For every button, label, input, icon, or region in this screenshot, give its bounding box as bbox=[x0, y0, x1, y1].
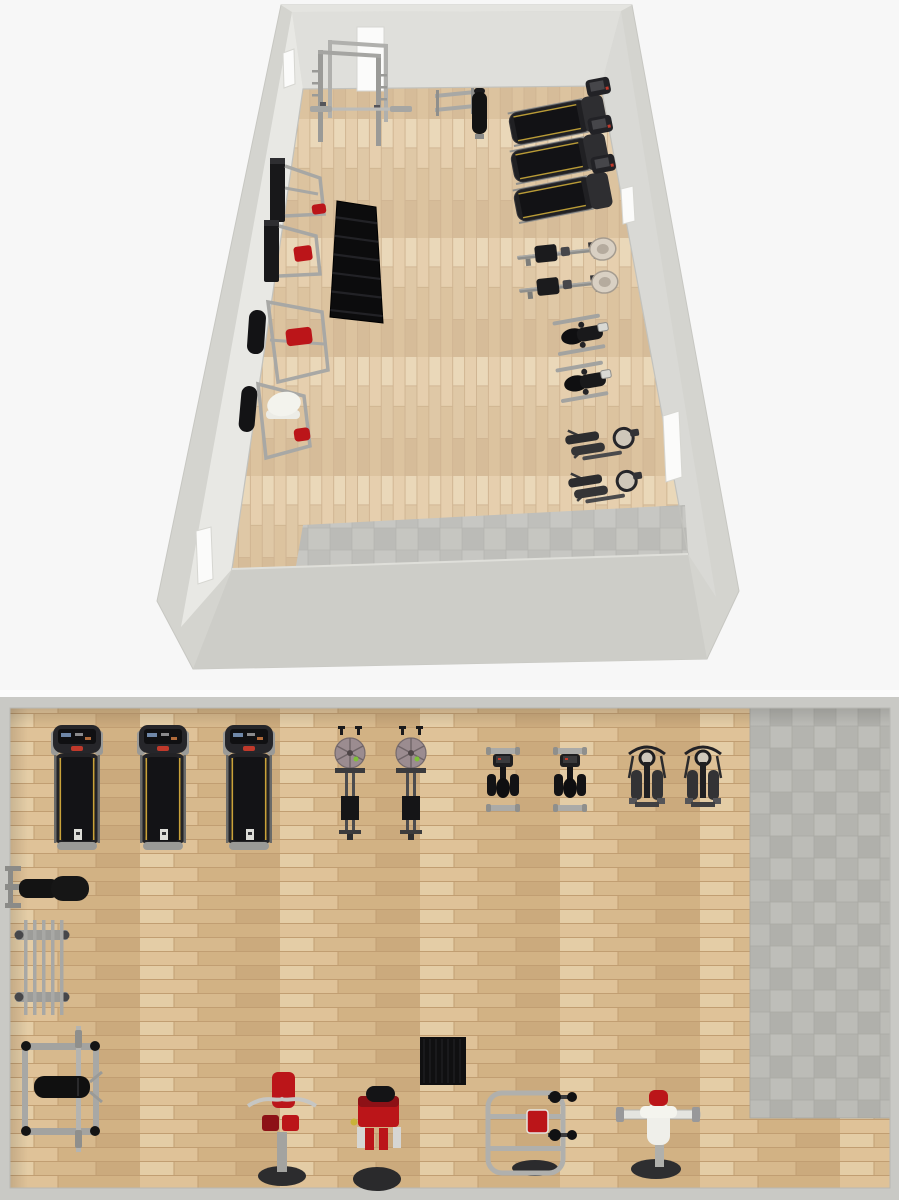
grip-weight bbox=[549, 1129, 561, 1141]
rail-knob bbox=[15, 993, 24, 1002]
foot-pedal bbox=[652, 770, 663, 800]
stop-button bbox=[71, 746, 83, 751]
stabilizer-cap bbox=[515, 804, 520, 812]
stored-barbell bbox=[51, 920, 55, 1015]
foot-pedal bbox=[687, 770, 698, 800]
pedal bbox=[510, 774, 519, 796]
bike-console bbox=[597, 322, 608, 332]
bike-console bbox=[600, 369, 611, 379]
front-stabilizer bbox=[486, 748, 520, 754]
frame-knob bbox=[21, 1126, 31, 1136]
rower-leg bbox=[527, 292, 533, 299]
screen-readout bbox=[75, 733, 83, 736]
rear-cap bbox=[347, 834, 353, 840]
rear-cap bbox=[57, 842, 97, 850]
bench-pad bbox=[34, 1076, 90, 1098]
weight-stack bbox=[270, 158, 285, 222]
rear-stabilizer bbox=[553, 805, 587, 811]
bench-pad bbox=[472, 92, 487, 134]
barbell-sleeve bbox=[390, 106, 412, 112]
elliptical-console bbox=[629, 429, 639, 437]
leg-pad bbox=[379, 1128, 388, 1150]
weight-stack bbox=[264, 220, 279, 282]
plan-top-gap bbox=[0, 690, 899, 697]
belt-stripe bbox=[179, 758, 181, 840]
rear-stabilizer bbox=[486, 805, 520, 811]
side-rail bbox=[98, 755, 101, 843]
front-stabilizer bbox=[553, 748, 587, 754]
belt-label-mark bbox=[76, 832, 80, 835]
monitor-dot bbox=[354, 757, 359, 762]
stabilizer-cap bbox=[553, 804, 558, 812]
screen-readout bbox=[161, 733, 169, 736]
stack-cap bbox=[264, 220, 279, 226]
adjust-handle bbox=[351, 1119, 358, 1126]
barbell-sleeve bbox=[75, 1030, 82, 1048]
column bbox=[655, 1142, 664, 1167]
belt-stripe bbox=[146, 758, 148, 840]
press-black-pad bbox=[246, 309, 266, 354]
rower-box bbox=[536, 277, 560, 296]
stabilizer-cap bbox=[582, 747, 587, 755]
red-seat bbox=[293, 245, 313, 262]
side-rail bbox=[226, 755, 229, 843]
right-door bbox=[663, 411, 682, 482]
stop-button bbox=[607, 124, 611, 128]
gym-2d-floor-plan bbox=[0, 690, 899, 1200]
rear-cap bbox=[408, 834, 414, 840]
side-rail bbox=[140, 755, 143, 843]
bench-foot bbox=[5, 903, 21, 908]
arm-grip bbox=[692, 1107, 700, 1122]
stop-button bbox=[243, 746, 255, 751]
bench-seat-pad bbox=[51, 876, 89, 901]
side-rail bbox=[270, 755, 273, 843]
frame-knob bbox=[90, 1041, 100, 1051]
belt-stripe bbox=[60, 758, 62, 840]
rear-cap bbox=[229, 842, 269, 850]
screen-dot bbox=[565, 758, 568, 760]
rail-knob bbox=[15, 931, 24, 940]
barbell-sleeve bbox=[75, 1130, 82, 1148]
stored-barbell bbox=[42, 920, 46, 1015]
front-wall-face bbox=[193, 554, 707, 669]
rack-peg bbox=[312, 70, 319, 73]
base-plate bbox=[353, 1167, 401, 1191]
screen-readout bbox=[171, 737, 177, 740]
stop-button bbox=[157, 746, 169, 751]
stored-barbell bbox=[60, 920, 64, 1015]
rubber-mat bbox=[420, 1037, 466, 1085]
arm-pad bbox=[262, 1115, 279, 1131]
barbell-sleeve bbox=[310, 106, 332, 112]
stored-barbell bbox=[24, 920, 28, 1015]
floor-shadow-top bbox=[10, 708, 890, 726]
side-rail bbox=[184, 755, 187, 843]
holder-post bbox=[436, 90, 439, 116]
handle-stem bbox=[401, 726, 404, 735]
rear-stabilizer bbox=[635, 802, 659, 807]
stack-cap bbox=[270, 158, 285, 164]
top-cushion bbox=[366, 1086, 395, 1102]
screen-readout bbox=[257, 737, 263, 740]
rear-cap bbox=[143, 842, 183, 850]
pedal bbox=[554, 774, 563, 796]
treadmill-belt bbox=[59, 757, 95, 841]
rack-peg bbox=[380, 98, 387, 101]
arm-grip bbox=[616, 1107, 624, 1122]
center-beam bbox=[700, 762, 706, 798]
cross-frame bbox=[396, 768, 426, 773]
back-pad bbox=[272, 1072, 295, 1108]
frame-bar bbox=[488, 1114, 563, 1119]
stop-button bbox=[610, 163, 614, 167]
shoulder-pad bbox=[640, 1106, 677, 1118]
stabilizer-cap bbox=[553, 747, 558, 755]
stabilizer-cap bbox=[486, 804, 491, 812]
leg-pad bbox=[365, 1128, 374, 1150]
handle-stem bbox=[340, 726, 343, 735]
rower-seat bbox=[562, 280, 572, 290]
frame-crossbar bbox=[22, 1043, 99, 1050]
head-pad bbox=[649, 1090, 668, 1106]
frame-leg bbox=[393, 1127, 401, 1148]
screen-readout bbox=[233, 733, 243, 737]
screen-dot bbox=[498, 758, 501, 760]
rear-foot bbox=[400, 830, 422, 834]
handle-stem bbox=[357, 726, 360, 735]
frame-rail bbox=[93, 1043, 99, 1135]
plan-tile-area bbox=[750, 708, 890, 1118]
monitor-dot bbox=[415, 757, 420, 762]
red-seat bbox=[527, 1110, 548, 1133]
seat-carriage bbox=[402, 796, 420, 820]
stabilizer-cap bbox=[515, 747, 520, 755]
red-pad bbox=[311, 203, 326, 215]
stop-button bbox=[605, 86, 609, 90]
belt-label-mark bbox=[162, 832, 166, 835]
grip-weight bbox=[567, 1092, 577, 1102]
grip-weight bbox=[567, 1130, 577, 1140]
cross-frame bbox=[335, 768, 365, 773]
pedal bbox=[487, 774, 496, 796]
belt-stripe bbox=[93, 758, 95, 840]
gym-3d-perspective-view bbox=[0, 0, 899, 690]
right-window bbox=[621, 186, 635, 224]
screen-readout bbox=[147, 733, 157, 737]
frame-crossbar bbox=[22, 1128, 99, 1135]
dumbbell-rack3d[interactable] bbox=[330, 201, 383, 323]
rack-peg bbox=[380, 86, 387, 89]
left-door bbox=[196, 527, 213, 584]
stored-barbell bbox=[33, 920, 37, 1015]
rower-leg bbox=[525, 259, 531, 266]
pedal bbox=[577, 774, 586, 796]
frame-leg bbox=[357, 1127, 365, 1148]
treadmill[interactable] bbox=[51, 725, 103, 850]
screen-readout bbox=[247, 733, 255, 736]
rower-box bbox=[534, 244, 558, 263]
frame-bar bbox=[488, 1146, 563, 1151]
flywheel-hub bbox=[408, 750, 414, 756]
rower-seat bbox=[560, 247, 570, 257]
mat[interactable] bbox=[420, 1037, 466, 1085]
rack-peg bbox=[380, 74, 387, 77]
bench3d[interactable] bbox=[472, 88, 487, 139]
back-wall-top-edge bbox=[281, 5, 632, 12]
screen-readout bbox=[61, 733, 71, 737]
treadmill-belt bbox=[145, 757, 181, 841]
flywheel-hub bbox=[347, 750, 353, 756]
arm-pad bbox=[282, 1115, 299, 1131]
elliptical-console bbox=[632, 472, 642, 480]
frame-rail bbox=[22, 1043, 28, 1135]
press-red-seat bbox=[285, 326, 313, 346]
belt-label-mark bbox=[248, 832, 252, 835]
back-wall-face bbox=[292, 11, 621, 89]
bike-seat bbox=[563, 778, 577, 798]
left-window bbox=[283, 49, 295, 88]
screen-readout bbox=[85, 737, 91, 740]
treadmill-belt bbox=[231, 757, 267, 841]
handle-stem bbox=[418, 726, 421, 735]
planner-canvas bbox=[0, 0, 899, 1200]
stabilizer-cap bbox=[582, 804, 587, 812]
treadmill[interactable] bbox=[137, 725, 189, 850]
rear-stabilizer bbox=[691, 802, 715, 807]
treadmill[interactable] bbox=[223, 725, 275, 850]
frame-knob bbox=[90, 1126, 100, 1136]
bench-foot bbox=[475, 134, 484, 139]
seat-carriage bbox=[341, 796, 359, 820]
belt-stripe bbox=[265, 758, 267, 840]
side-rail bbox=[54, 755, 57, 843]
foot-pedal bbox=[708, 770, 719, 800]
column bbox=[277, 1132, 287, 1172]
frame-knob bbox=[21, 1041, 31, 1051]
stabilizer-cap bbox=[486, 747, 491, 755]
center-beam bbox=[644, 762, 650, 798]
foot-pedal bbox=[631, 770, 642, 800]
rack-peg bbox=[312, 94, 319, 97]
bench-foot bbox=[5, 866, 21, 871]
pec-red-pad bbox=[293, 427, 311, 442]
rear-foot bbox=[339, 830, 361, 834]
bike-seat bbox=[496, 778, 510, 798]
rack-peg bbox=[312, 82, 319, 85]
grip-weight bbox=[549, 1091, 561, 1103]
belt-stripe bbox=[232, 758, 234, 840]
